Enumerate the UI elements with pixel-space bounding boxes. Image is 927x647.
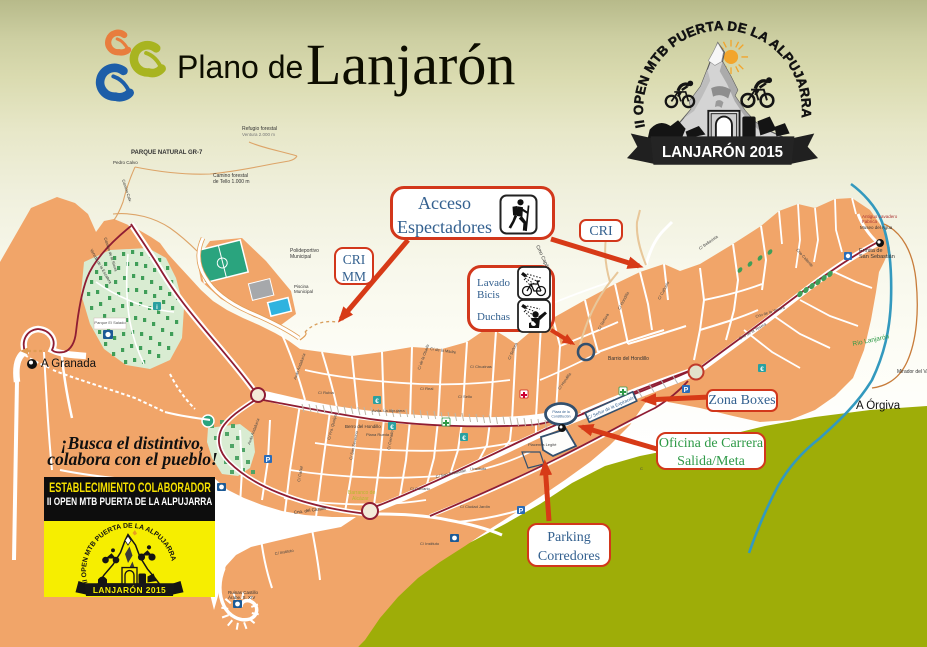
svg-text:LANJARÓN 2015: LANJARÓN 2015 [93,584,166,595]
